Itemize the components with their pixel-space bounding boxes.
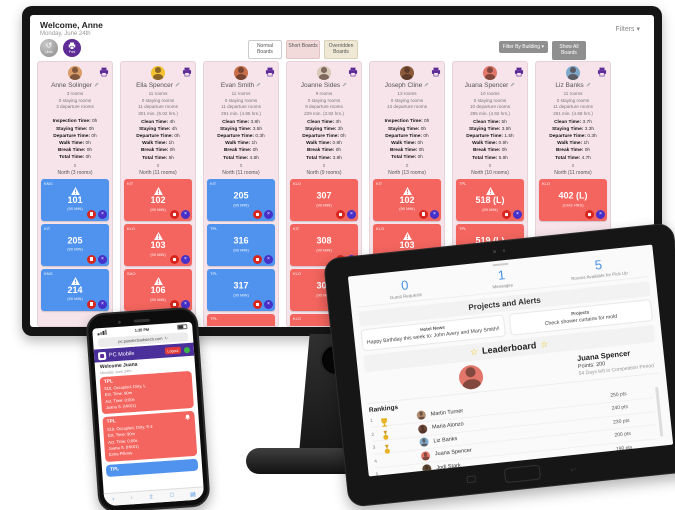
room-card[interactable]: TPL 316 (90 MIN)	[207, 224, 275, 266]
room-card[interactable]: KLO 402 (L) (CHG HRS)	[539, 179, 607, 221]
trophy-icon	[379, 417, 390, 428]
print-board-icon[interactable]	[182, 67, 192, 77]
board-stats: 10 rooms 0 staying rooms 10 departure ro…	[456, 91, 524, 118]
time-stat: Clean Time: 5h	[456, 119, 524, 126]
time-stat: Total Time: 3.8h	[290, 155, 358, 162]
time-stat: Break Time: 0h	[207, 147, 275, 154]
star-icon: ☆	[540, 339, 549, 350]
browser-nav-icon[interactable]: □	[170, 492, 174, 498]
stop-icon	[339, 213, 343, 217]
stop-badge[interactable]	[87, 255, 96, 264]
phone-room-cards: TPL 518, Occupied, Dirty, L Est. Time: 9…	[96, 369, 203, 478]
time-stat: Inspection Time: 0h	[373, 118, 441, 125]
page: Welcome, Anne Monday, June 24th Filters …	[0, 0, 675, 510]
ranking-points: 190 pts	[616, 445, 633, 453]
time-stats: Clean Time: 3.7h Staying Time: 3.3h Depa…	[539, 119, 607, 162]
time-stats: Clean Time: 3.8h Staying Time: 3.5h Depa…	[207, 119, 275, 162]
undo-button[interactable]: ↺ Undo	[40, 39, 58, 57]
room-type-code: TPL	[459, 226, 466, 231]
board-zone: North (11 rooms)	[207, 168, 275, 179]
time-stat: Walk Time: 0h	[41, 140, 109, 147]
time-stat: Departure Time: 0h	[41, 133, 109, 140]
stop-badge[interactable]	[170, 255, 179, 264]
stat-block: 1 Messages	[452, 263, 551, 293]
print-board-icon[interactable]	[265, 67, 275, 77]
room-type-code: KLO	[127, 226, 135, 231]
stop-badge[interactable]	[253, 300, 262, 309]
room-number: 307	[290, 191, 358, 201]
board-stats: 11 rooms 0 staying rooms 11 departure ro…	[207, 91, 275, 118]
app-logo	[98, 351, 107, 360]
phone-room-code: TPL	[110, 462, 194, 473]
room-time-estimate: (CHG HRS)	[539, 202, 607, 207]
warning-icon	[154, 277, 163, 285]
staying-count: 0 staying rooms	[41, 98, 109, 105]
time-stat: Departure Time: 0.3h	[207, 133, 275, 140]
room-number: 205	[207, 191, 275, 201]
stop-badge[interactable]	[170, 210, 179, 219]
board-zone: North (10 rooms)	[456, 168, 524, 179]
time-stat: Staying Time: 0h	[41, 126, 109, 133]
stop-badge[interactable]	[585, 210, 594, 219]
print-board-icon[interactable]	[514, 67, 524, 77]
room-number: 518 (L)	[456, 196, 524, 206]
boards-tab[interactable]: Normal Boards	[248, 40, 282, 59]
warning-icon	[403, 187, 412, 195]
print-board-icon[interactable]	[99, 67, 109, 77]
room-time-estimate: (90 MIN)	[290, 247, 358, 252]
drag-handle	[492, 263, 508, 267]
time-stat: Total Time: 0h	[41, 154, 109, 161]
housekeeper-name: Ella Spencer	[124, 82, 192, 89]
board-zone: North (11 rooms)	[124, 168, 192, 179]
phone-device: 1:25 PM pc.purplecloudstech.com ↻ PC Mob…	[85, 306, 211, 510]
dnd-badge[interactable]: ×	[98, 210, 107, 219]
room-type-code: KLO	[293, 271, 301, 276]
print-board-icon[interactable]	[431, 67, 441, 77]
room-card[interactable]: KNG 101 (90 MIN)	[41, 179, 109, 221]
time-stat: Total Time: 4.7h	[539, 155, 607, 162]
departure-count: 10 departure rooms	[456, 104, 524, 111]
housekeeper-name: Anne Solinger	[41, 82, 109, 89]
room-cards: KLO 402 (L) (CHG HRS)	[539, 179, 607, 221]
warning-icon	[486, 187, 495, 195]
filters-dropdown[interactable]: Filters ▾	[615, 25, 640, 33]
housekeeper-board: Evan Smith 11 rooms 0 staying rooms 11 d…	[203, 61, 279, 327]
time-stat: Staying Time: 3.5h	[456, 126, 524, 133]
star-icon: ☆	[470, 346, 479, 357]
minutes-total: 281 min. (4.68 hrs.)	[539, 111, 607, 118]
time-stat: Walk Time: 1h	[207, 140, 275, 147]
board-stats: 11 rooms 0 staying rooms 11 departure ro…	[539, 91, 607, 118]
browser-nav-icon[interactable]: ⇧	[149, 493, 155, 500]
housekeeper-name: Juana Spencer	[456, 82, 524, 89]
dnd-badge[interactable]: ×	[596, 210, 605, 219]
dnd-badge[interactable]: ×	[430, 210, 439, 219]
time-stat: Break Time: 0h	[373, 147, 441, 154]
browser-nav-icon[interactable]: ›	[130, 495, 132, 501]
time-stat: Departure Time: 0h	[290, 133, 358, 140]
filter-by-building-button[interactable]: Filter By Building ▾	[499, 41, 548, 53]
dnd-badge[interactable]: ×	[98, 300, 107, 309]
room-number: 205	[41, 236, 109, 246]
minutes-total: 301 min. (5.02 hrs.)	[124, 111, 192, 118]
room-card[interactable]: KIT 102 (90 MIN)	[124, 179, 192, 221]
stop-icon	[90, 212, 94, 216]
stat-block: 5 Rooms Available for Pick Up	[549, 253, 648, 283]
time-stat: Staying Time: 0h	[373, 126, 441, 133]
stop-badge[interactable]	[253, 210, 262, 219]
time-stats: Clean Time: 3h Staying Time: 3h Departur…	[290, 119, 358, 162]
phone-room-card[interactable]: TPL 518, Occupied, Dirty, L Est. Time: 9…	[100, 370, 194, 414]
room-type-code: KIT	[127, 181, 133, 186]
room-card[interactable]: TPL 317 (90 MIN)	[207, 269, 275, 311]
staying-count: 0 staying rooms	[373, 98, 441, 105]
housekeeper-name: Liz Banks	[539, 82, 607, 89]
signal-icon	[97, 330, 106, 336]
ranking-points: 250 pts	[610, 391, 627, 399]
rooms-count: 3 rooms	[41, 91, 109, 98]
room-card[interactable]: KIT 102 (90 MIN)	[373, 179, 441, 221]
time-stat: Departure Time: 0h	[124, 133, 192, 140]
ranking-points: 240 pts	[611, 404, 628, 412]
time-stat: Staying Time: 3.3h	[539, 126, 607, 133]
online-status-icon	[184, 346, 190, 352]
board-zone: North (3 rooms)	[41, 168, 109, 179]
board-zone: North (13 rooms)	[373, 168, 441, 179]
room-card[interactable]: KIT 205 (90 MIN)	[41, 224, 109, 266]
status-time: 1:25 PM	[135, 327, 150, 332]
boards-tab[interactable]: Overridden Boards	[324, 40, 358, 59]
time-stat: Staying Time: 3h	[290, 126, 358, 133]
time-stat: Total Time: 5.9h	[456, 155, 524, 162]
edit-icon[interactable]	[175, 82, 180, 87]
show-all-boards-button[interactable]: Show All Boards	[552, 41, 586, 60]
stop-icon	[173, 258, 177, 262]
welcome-text: Welcome, Anne	[40, 20, 103, 30]
warning-icon	[71, 187, 80, 195]
housekeeper-board: Anne Solinger 3 rooms 0 staying rooms 3 …	[37, 61, 113, 327]
room-type-code: KIT	[44, 226, 50, 231]
ranking-avatar	[422, 464, 432, 474]
time-stat: Total Time: 5h	[124, 155, 192, 162]
medal-icon	[380, 430, 391, 441]
phone-room-card[interactable]: TPL 519, Occupied, Dirty, S-2 Est. Time:…	[102, 411, 197, 462]
time-stat: Break Time: 0h	[290, 147, 358, 154]
rooms-count: 9 rooms	[290, 91, 358, 98]
filter-buttons: Filter By Building ▾ Show All Boards	[499, 41, 586, 60]
edit-icon[interactable]	[510, 82, 515, 87]
stop-badge[interactable]	[253, 255, 262, 264]
stop-icon	[256, 213, 260, 217]
edit-icon[interactable]	[256, 82, 261, 87]
home-button[interactable]	[504, 465, 541, 484]
time-stat: Break Time: 0h	[539, 147, 607, 154]
dnd-badge[interactable]: ×	[181, 210, 190, 219]
time-stat: Walk Time: 0.9h	[456, 140, 524, 147]
housekeeper-name: Evan Smith	[207, 82, 275, 89]
room-number: 102	[124, 196, 192, 206]
printer-icon	[68, 42, 76, 50]
stop-icon	[256, 303, 260, 307]
housekeeper-board: Ella Spencer 11 rooms 0 staying rooms 11…	[120, 61, 196, 327]
time-stat: Total Time: 4.8h	[207, 155, 275, 162]
url-text: pc.purplecloudstech.com	[118, 336, 162, 344]
board-stats: 13 rooms 0 staying rooms 13 departure ro…	[373, 91, 441, 117]
room-time-estimate: (90 MIN)	[290, 202, 358, 207]
ranking-avatar	[419, 437, 429, 447]
dnd-badge[interactable]: ×	[264, 210, 273, 219]
room-type-code: KLO	[542, 181, 550, 186]
bell-icon	[184, 414, 190, 420]
rooms-count: 13 rooms	[373, 91, 441, 98]
room-type-code: KLO	[376, 226, 384, 231]
browser-nav-icon[interactable]: ▤	[190, 490, 196, 497]
board-zone: North (9 rooms)	[290, 168, 358, 179]
departure-count: 11 departure rooms	[207, 104, 275, 111]
print-board-icon[interactable]	[348, 67, 358, 77]
undo-icon: ↺	[46, 42, 53, 50]
room-cards: KIT 102 (90 MIN)	[124, 179, 192, 327]
warning-icon	[403, 232, 412, 240]
housekeeper-avatar	[400, 66, 414, 80]
rank-number: 2	[371, 431, 380, 437]
time-stat: Total Time: 0h	[373, 154, 441, 161]
time-stats: Inspection Time: 0h Staying Time: 0h Dep…	[373, 118, 441, 161]
tablet-camera	[493, 249, 505, 253]
staying-count: 0 staying rooms	[456, 98, 524, 105]
room-type-code: TPL	[210, 226, 217, 231]
dnd-badge[interactable]: ×	[181, 255, 190, 264]
dnd-badge[interactable]: ×	[513, 210, 522, 219]
ranking-avatar	[421, 451, 431, 461]
stop-icon	[173, 303, 177, 307]
phone-screen: 1:25 PM pc.purplecloudstech.com ↻ PC Mob…	[92, 322, 204, 507]
room-number: 106	[124, 286, 192, 296]
housekeeper-avatar	[317, 66, 331, 80]
time-stat: Break Time: 0h	[41, 147, 109, 154]
room-type-code: KIT	[293, 226, 299, 231]
room-time-estimate: (90 MIN)	[207, 202, 275, 207]
phone-camera	[118, 321, 121, 324]
phone-room-card[interactable]: TPL	[106, 458, 199, 477]
minutes-total: 291 min. (4.85 hrs.)	[207, 111, 275, 118]
stop-icon	[256, 258, 260, 262]
time-stat: Break Time: 0h	[124, 147, 192, 154]
stop-icon	[505, 213, 509, 217]
boards-tabs: Normal Boards Short Boards Overridden Bo…	[248, 40, 358, 59]
board-stats: 11 rooms 0 staying rooms 11 departure ro…	[124, 91, 192, 118]
stop-badge[interactable]	[87, 300, 96, 309]
profile-avatar	[458, 364, 484, 390]
board-stats: 9 rooms 0 staying rooms 9 departure room…	[290, 91, 358, 118]
room-type-code: KIT	[376, 181, 382, 186]
dnd-badge[interactable]: ×	[264, 255, 273, 264]
housekeeper-avatar	[234, 66, 248, 80]
housekeeper-avatar	[483, 66, 497, 80]
time-stat: Departure Time: 0h	[373, 133, 441, 140]
board-zone: North (11 rooms)	[539, 168, 607, 179]
app-brand: PC Mobile	[109, 348, 162, 358]
time-stat: Staying Time: 4h	[124, 126, 192, 133]
room-type-code: KLO	[293, 316, 301, 321]
stop-icon	[422, 212, 426, 216]
dnd-badge[interactable]: ×	[264, 300, 273, 309]
time-stats: Inspection Time: 0h Staying Time: 0h Dep…	[41, 118, 109, 161]
time-stats: Clean Time: 5h Staying Time: 3.5h Depart…	[456, 119, 524, 162]
room-type-code: TPL	[210, 271, 217, 276]
time-stat: Clean Time: 3h	[290, 119, 358, 126]
room-number: 308	[290, 236, 358, 246]
stop-icon	[90, 302, 94, 306]
room-card[interactable]: KIT 205 (90 MIN)	[207, 179, 275, 221]
date-text: Monday, June 24th	[40, 31, 103, 37]
room-number: 102	[373, 196, 441, 206]
warning-icon	[154, 187, 163, 195]
room-number: 317	[207, 281, 275, 291]
rooms-count: 11 rooms	[539, 91, 607, 98]
battery-icon	[177, 324, 187, 330]
tablet-device: 0 Guest Requests 1 Messages 5 Rooms Avai…	[323, 222, 675, 507]
room-type-code: KNG	[44, 181, 53, 186]
room-cards: KNG 101 (90 MIN)	[41, 179, 109, 311]
browser-nav-icon[interactable]: ‹	[112, 497, 114, 503]
room-time-estimate: (90 MIN)	[41, 247, 109, 252]
rooms-count: 11 rooms	[124, 91, 192, 98]
staying-count: 0 staying rooms	[290, 98, 358, 105]
warning-icon	[71, 277, 80, 285]
ranking-avatar	[418, 424, 428, 434]
housekeeper-name: Joseph Cline	[373, 82, 441, 89]
departure-count: 11 departure rooms	[124, 104, 192, 111]
stop-badge[interactable]	[336, 210, 345, 219]
room-card[interactable]: TPL 318 (90 MIN)	[207, 314, 275, 327]
phone-speaker	[134, 319, 150, 323]
minutes-total	[41, 111, 109, 118]
room-number: 318	[207, 326, 275, 327]
edit-icon[interactable]	[424, 82, 429, 87]
room-type-code: KNG	[44, 271, 53, 276]
staying-count: 0 staying rooms	[207, 98, 275, 105]
refresh-icon[interactable]: ↻	[164, 335, 168, 340]
boards-tab[interactable]: Short Boards	[286, 40, 320, 59]
board-stats: 3 rooms 0 staying rooms 3 departure room…	[41, 91, 109, 117]
minutes-total	[373, 111, 441, 118]
ranking-points: 230 pts	[613, 418, 630, 426]
dnd-badge[interactable]: ×	[98, 255, 107, 264]
minutes-total: 295 min. (4.92 hrs.)	[456, 111, 524, 118]
time-stat: Walk Time: 1h	[539, 140, 607, 147]
room-type-code: SAO	[127, 271, 135, 276]
room-type-code: TPL	[459, 181, 466, 186]
stop-icon	[588, 213, 592, 217]
time-stat: Departure Time: 0.3h	[539, 133, 607, 140]
welcome-block: Welcome, Anne Monday, June 24th	[40, 20, 103, 37]
stop-badge[interactable]	[502, 210, 511, 219]
staying-count: 0 staying rooms	[539, 98, 607, 105]
tablet-screen: 0 Guest Requests 1 Messages 5 Rooms Avai…	[348, 245, 673, 477]
browser-nav-bar: ‹ › ⇧ □ ▤	[104, 486, 205, 506]
edit-icon[interactable]	[94, 82, 99, 87]
time-stat: Clean Time: 3.7h	[539, 119, 607, 126]
rooms-count: 10 rooms	[456, 91, 524, 98]
stop-badge[interactable]	[419, 210, 428, 219]
room-number: 214	[41, 286, 109, 296]
room-type-code: TPL	[210, 316, 217, 321]
time-stat: Walk Time: 0.8h	[290, 140, 358, 147]
departure-count: 11 departure rooms	[539, 104, 607, 111]
stop-badge[interactable]	[87, 210, 96, 219]
room-number: 402 (L)	[539, 191, 607, 201]
room-card[interactable]: KLO 103 (90 MIN)	[124, 224, 192, 266]
stop-icon	[90, 257, 94, 261]
back-key[interactable]: ↩	[570, 467, 577, 475]
time-stat: Departure Time: 1.5h	[456, 133, 524, 140]
room-time-estimate: (90 MIN)	[207, 292, 275, 297]
departure-count: 3 departure rooms	[41, 104, 109, 111]
ranking-points: 200 pts	[614, 431, 631, 439]
medal-icon	[382, 444, 393, 455]
housekeeper-avatar	[566, 66, 580, 80]
room-number: 316	[207, 236, 275, 246]
room-cards: KIT 205 (90 MIN)	[207, 179, 275, 327]
room-time-estimate: (90 MIN)	[207, 247, 275, 252]
minutes-total: 229 min. (3.82 hrs.)	[290, 111, 358, 118]
housekeeper-avatar	[68, 66, 82, 80]
stat-block: 0 Guest Requests	[356, 274, 455, 304]
time-stat: Walk Time: 1h	[124, 140, 192, 147]
room-number: 103	[124, 241, 192, 251]
warning-icon	[154, 232, 163, 240]
recent-apps-key[interactable]	[466, 475, 476, 483]
rooms-count: 11 rooms	[207, 91, 275, 98]
print-button[interactable]: Print	[63, 39, 81, 57]
room-card[interactable]: KLO 307 (90 MIN)	[290, 179, 358, 221]
room-card[interactable]: SAO 106 (90 MIN)	[124, 269, 192, 311]
time-stats: Clean Time: 4h Staying Time: 4h Departur…	[124, 119, 192, 162]
print-board-icon[interactable]	[597, 67, 607, 77]
room-type-code: KIT	[210, 181, 216, 186]
time-stat: Walk Time: 0h	[373, 140, 441, 147]
toolbar: ↺ Undo Print	[40, 39, 81, 57]
room-card[interactable]: TPL 518 (L) (90 MIN)	[456, 179, 524, 221]
dnd-badge[interactable]: ×	[347, 210, 356, 219]
room-type-code: KLO	[293, 181, 301, 186]
stop-icon	[173, 213, 177, 217]
edit-icon[interactable]	[342, 82, 347, 87]
room-card[interactable]: KNG 214 (90 MIN)	[41, 269, 109, 311]
departure-count: 9 departure rooms	[290, 104, 358, 111]
housekeeper-avatar	[151, 66, 165, 80]
departure-count: 13 departure rooms	[373, 104, 441, 111]
staying-count: 0 staying rooms	[124, 98, 192, 105]
time-stat: Break Time: 0h	[456, 147, 524, 154]
logout-button[interactable]: Logout	[165, 347, 181, 355]
time-stat: Clean Time: 4h	[124, 119, 192, 126]
time-stat: Inspection Time: 0h	[41, 118, 109, 125]
housekeeper-name: Joanne Sides	[290, 82, 358, 89]
time-stat: Staying Time: 3.5h	[207, 126, 275, 133]
ranking-avatar	[416, 411, 426, 421]
room-number: 101	[41, 196, 109, 206]
time-stat: Clean Time: 3.8h	[207, 119, 275, 126]
edit-icon[interactable]	[586, 82, 591, 87]
